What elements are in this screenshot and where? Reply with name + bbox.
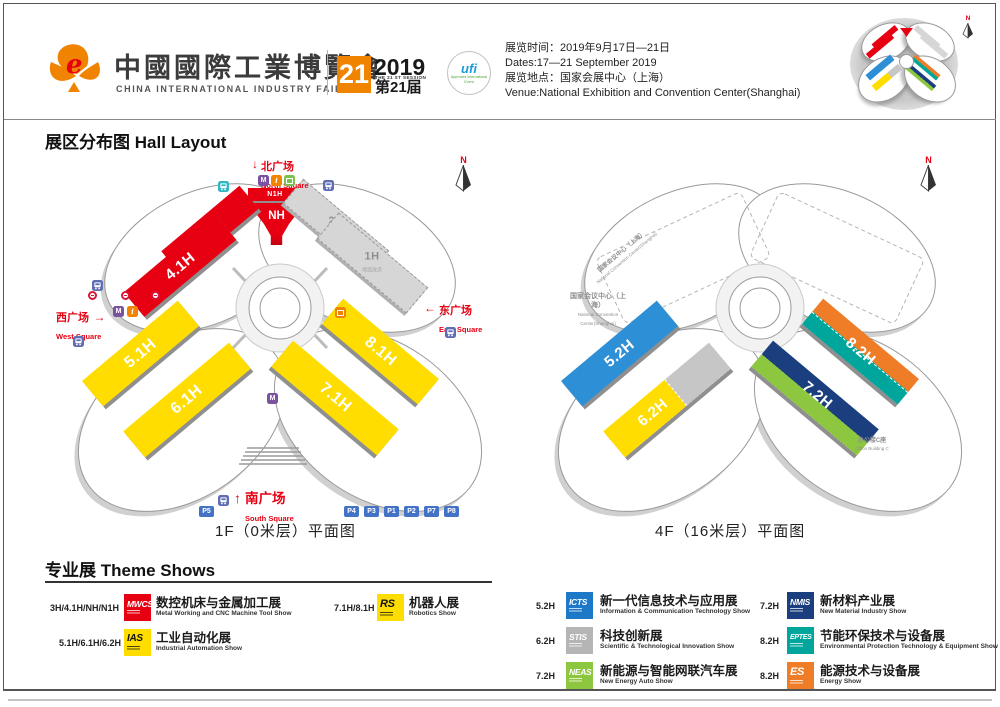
facility-icon-north: [284, 175, 295, 186]
ufi-logo-text: ufi: [461, 62, 477, 75]
exhibition-info: 展览时间：2019年9月17日—21日 Dates:17—21 Septembe…: [505, 41, 800, 101]
bus-icon-east: [445, 327, 456, 338]
eptes-logo: EPTES: [787, 627, 814, 654]
floor4-compass: N: [920, 156, 937, 193]
metro-icon-center: M: [267, 393, 278, 404]
theme-shows-rule: [45, 581, 492, 583]
ias-logo: IAS: [124, 629, 151, 656]
ncc-west-en: National Convention Center(Shanghai): [578, 312, 619, 326]
parking-icon-p8: P8: [444, 506, 459, 517]
session-21-badge: 21: [337, 56, 371, 93]
theme-shows-title-cn: 专业展: [45, 561, 96, 580]
metro-station-icon-2: [121, 291, 130, 300]
icts-logo: ICTS: [566, 592, 593, 619]
floor1-compass: N: [455, 156, 472, 193]
hall-layout-poster: e 中國國際工業博覽會 CHINA INTERNATIONAL INDUSTRY…: [0, 0, 1000, 707]
metro-station-icon-1: [88, 291, 97, 300]
west-arrow-icon: →: [93, 310, 105, 324]
east-arrow-icon: ←: [424, 301, 436, 337]
west-square-cn: 西广场: [56, 312, 89, 324]
floor4-map: [535, 148, 985, 528]
floor4-caption: 4F（16米层）平面图: [655, 520, 805, 541]
parking-icon-p2: P2: [404, 506, 419, 517]
floor4-compass-n: N: [925, 156, 932, 165]
bus-icon-northeast: [323, 180, 334, 191]
floor4-compass-needle-icon: [920, 165, 937, 193]
metro-icon-west: M: [113, 306, 124, 317]
info-venue-cn: 展览地点：国家会展中心（上海）: [505, 71, 800, 86]
mini-overview-map: [848, 8, 966, 116]
office-building-label: 办公楼C座 Office Building C: [842, 438, 902, 454]
info-time-cn: 展览时间：2019年9月17日—21日: [505, 41, 800, 56]
nmis-logo: NMIS: [787, 592, 814, 619]
legend-text-es: 能源技术与设备展 Energy Show: [820, 664, 920, 685]
info-venue-en: Venue:National Exhibition and Convention…: [505, 86, 800, 101]
legend-halls-nmis: 7.2H: [760, 601, 779, 611]
parking-icon-p3: P3: [364, 506, 379, 517]
legend-text-nmis: 新材料产业展 New Material Industry Show: [820, 594, 906, 615]
hall-nh-label: NH: [268, 210, 285, 222]
info-dates-en: Dates:17—21 September 2019: [505, 56, 800, 71]
legend-text-eptes: 节能环保技术与设备展 Environmental Protection Tech…: [820, 629, 998, 650]
header-compass: N: [962, 16, 974, 39]
floor1-compass-needle-icon: [455, 165, 472, 193]
info-icon-north: i: [271, 175, 282, 186]
parking-icon-p1: P1: [384, 506, 399, 517]
legend-text-mwcs: 数控机床与金属加工展 Metal Working and CNC Machine…: [156, 596, 292, 617]
stis-logo: STIS: [566, 627, 593, 654]
es-logo: ES: [787, 662, 814, 689]
legend-halls-es: 8.2H: [760, 671, 779, 681]
hall-1h-label: 1H: [365, 251, 380, 263]
parking-icon-p7: P7: [424, 506, 439, 517]
neas-logo: NEAS: [566, 662, 593, 689]
north-arrow-icon: ↓: [252, 157, 258, 193]
bus-icon-west-1: [92, 280, 103, 291]
south-square-cn: 南广场: [245, 491, 286, 506]
legend-halls-neas: 7.2H: [536, 671, 555, 681]
ncc-west-cn: 国家会议中心（上海）: [570, 293, 626, 309]
floor1-caption: 1F（0米层）平面图: [215, 520, 356, 541]
ufi-approved-badge: ufi Approved International Event: [447, 51, 491, 95]
page-edge-shadow: [8, 699, 992, 701]
legend-text-icts: 新一代信息技术与应用展 Information & Communication …: [600, 594, 750, 615]
footer-rule: [4, 689, 996, 691]
rs-logo: RS: [377, 594, 404, 621]
mwcs-logo: MWCS: [124, 594, 151, 621]
legend-halls-stis: 6.2H: [536, 636, 555, 646]
parking-icon-p4: P4: [344, 506, 359, 517]
legend-text-rs: 机器人展 Robotics Show: [409, 596, 459, 617]
floor4-building-outline: [535, 148, 985, 528]
legend-text-stis: 科技创新展 Scientific & Technological Innovat…: [600, 629, 734, 650]
svg-text:e: e: [66, 50, 83, 80]
badge-session-cn: 第21届: [375, 80, 422, 97]
info-icon-west: i: [127, 306, 138, 317]
legend-text-ias: 工业自动化展 Industrial Automation Show: [156, 631, 242, 652]
legend-halls-mwcs: 3H/4.1H/NH/N1H: [50, 603, 119, 613]
legend-halls-ias: 5.1H/6.1H/6.2H: [59, 638, 121, 648]
header-rule: [4, 119, 996, 120]
brand-title-en: CHINA INTERNATIONAL INDUSTRY FAIR: [116, 84, 343, 94]
floor1-compass-n: N: [460, 156, 467, 165]
theme-shows-title-en: Theme Shows: [101, 561, 215, 580]
mini-center-ring: [899, 54, 914, 69]
compass-needle-icon: [962, 23, 974, 39]
ufi-sub-text: Approved International Event: [448, 75, 490, 84]
transit-icon-north: [218, 181, 229, 192]
metro-station-icon-3: [151, 291, 160, 300]
office-building-en: Office Building C: [855, 446, 888, 451]
ciif-flower-logo: e: [46, 40, 108, 102]
header-divider: [327, 50, 328, 95]
hall-1h-note: 场馆改造: [362, 268, 382, 274]
metro-icon-north: M: [258, 175, 269, 186]
legend-halls-eptes: 8.2H: [760, 636, 779, 646]
legend-text-neas: 新能源与智能网联汽车展 New Energy Auto Show: [600, 664, 738, 685]
north-square-cn: 北广场: [261, 161, 294, 173]
office-building-cn: 办公楼C座: [858, 438, 886, 444]
legend-halls-rs: 7.1H/8.1H: [334, 603, 375, 613]
parking-icon-p5: P5: [199, 506, 214, 517]
bus-icon-south: [218, 495, 229, 506]
theme-shows-title: 专业展 Theme Shows: [45, 556, 215, 581]
legend-halls-icts: 5.2H: [536, 601, 555, 611]
bus-icon-west-2: [73, 336, 84, 347]
east-square-cn: 东广场: [439, 305, 472, 317]
service-icon-center-east: [335, 307, 346, 318]
ncc-label-west: 国家会议中心（上海） National Convention Center(Sh…: [570, 292, 626, 328]
hall-62h-divider: [665, 379, 688, 406]
